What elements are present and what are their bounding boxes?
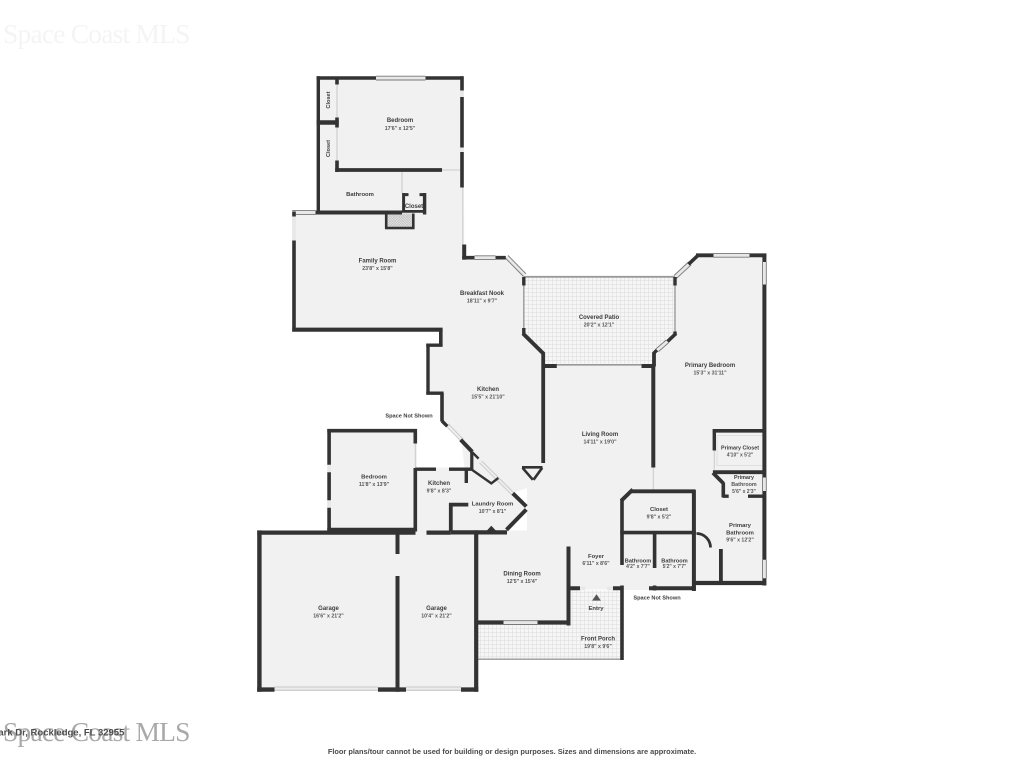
svg-text:17'6" x 12'5": 17'6" x 12'5" bbox=[385, 126, 416, 132]
svg-text:11'8" x 13'9": 11'8" x 13'9" bbox=[359, 482, 390, 488]
svg-text:Closet: Closet bbox=[326, 140, 332, 157]
svg-text:Breakfast Nook: Breakfast Nook bbox=[460, 291, 505, 297]
svg-text:Space Coast MLS: Space Coast MLS bbox=[3, 18, 190, 49]
svg-text:4'10" x 5'2": 4'10" x 5'2" bbox=[727, 453, 754, 459]
svg-text:12'5" x 15'4": 12'5" x 15'4" bbox=[507, 579, 538, 585]
svg-text:Bedroom: Bedroom bbox=[387, 118, 413, 124]
svg-text:Closet: Closet bbox=[650, 507, 668, 513]
svg-text:16'6" x 21'2": 16'6" x 21'2" bbox=[313, 614, 344, 620]
svg-text:Primary Closet: Primary Closet bbox=[721, 446, 759, 452]
svg-text:Dining Room: Dining Room bbox=[503, 572, 540, 578]
svg-text:Park Dr, Rockledge, FL 32955: Park Dr, Rockledge, FL 32955 bbox=[0, 728, 125, 739]
svg-text:5'6" x 2'3": 5'6" x 2'3" bbox=[732, 489, 756, 495]
svg-text:19'8" x 9'6": 19'8" x 9'6" bbox=[584, 644, 612, 650]
svg-text:4'2" x 7'7": 4'2" x 7'7" bbox=[626, 564, 650, 570]
svg-text:Bathroom: Bathroom bbox=[731, 482, 757, 488]
svg-text:9'8" x 5'2": 9'8" x 5'2" bbox=[647, 515, 672, 521]
svg-text:6'11" x 8'6": 6'11" x 8'6" bbox=[582, 561, 610, 567]
svg-text:9'8" x 8'3": 9'8" x 8'3" bbox=[427, 489, 452, 495]
svg-text:Closet: Closet bbox=[405, 204, 423, 210]
svg-text:20'2" x 12'1": 20'2" x 12'1" bbox=[584, 323, 615, 329]
svg-text:Front Porch: Front Porch bbox=[581, 637, 615, 643]
svg-text:23'8" x 15'8": 23'8" x 15'8" bbox=[362, 266, 393, 272]
svg-text:15'5" x 21'10": 15'5" x 21'10" bbox=[471, 395, 505, 401]
svg-text:Floor plans/tour cannot be use: Floor plans/tour cannot be used for buil… bbox=[328, 747, 696, 756]
svg-text:Bedroom: Bedroom bbox=[361, 475, 387, 481]
svg-text:Closet: Closet bbox=[326, 91, 332, 108]
svg-text:Laundry Room: Laundry Room bbox=[472, 502, 514, 508]
svg-text:Bathroom: Bathroom bbox=[726, 531, 754, 537]
svg-text:Covered Patio: Covered Patio bbox=[579, 315, 620, 321]
svg-text:Primary: Primary bbox=[734, 475, 754, 481]
svg-text:Entry: Entry bbox=[588, 606, 604, 612]
svg-text:Garage: Garage bbox=[318, 606, 339, 612]
svg-text:Family Room: Family Room bbox=[359, 259, 397, 265]
svg-text:Space Not Shown: Space Not Shown bbox=[633, 596, 681, 602]
svg-text:15'3" x 31'11": 15'3" x 31'11" bbox=[693, 371, 727, 377]
svg-text:5'2" x 7'7": 5'2" x 7'7" bbox=[663, 564, 687, 570]
svg-text:Primary Bedroom: Primary Bedroom bbox=[685, 363, 735, 369]
svg-text:Kitchen: Kitchen bbox=[477, 387, 499, 393]
svg-text:Garage: Garage bbox=[426, 606, 447, 612]
svg-text:14'11" x 19'0": 14'11" x 19'0" bbox=[583, 440, 617, 446]
svg-text:Space Not Shown: Space Not Shown bbox=[385, 414, 433, 420]
svg-text:10'4" x 21'2": 10'4" x 21'2" bbox=[421, 614, 452, 620]
svg-text:18'11" x 9'7": 18'11" x 9'7" bbox=[467, 299, 498, 305]
svg-text:Living Room: Living Room bbox=[582, 432, 618, 438]
svg-text:Primary: Primary bbox=[729, 523, 752, 529]
svg-text:Bathroom: Bathroom bbox=[346, 192, 374, 198]
svg-text:9'6" x 12'2": 9'6" x 12'2" bbox=[726, 538, 754, 544]
svg-text:10'7" x 8'1": 10'7" x 8'1" bbox=[479, 509, 507, 515]
svg-text:Kitchen: Kitchen bbox=[428, 481, 450, 487]
svg-text:Foyer: Foyer bbox=[588, 554, 605, 560]
